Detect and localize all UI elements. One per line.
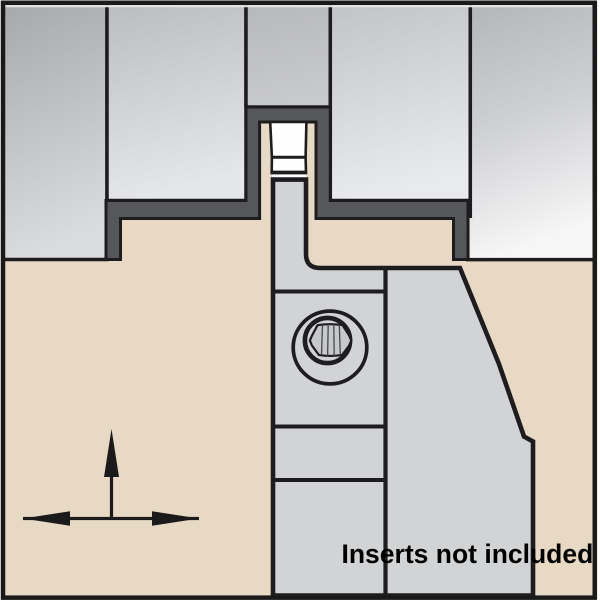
svg-text:Inserts not included: Inserts not included [342, 539, 594, 569]
